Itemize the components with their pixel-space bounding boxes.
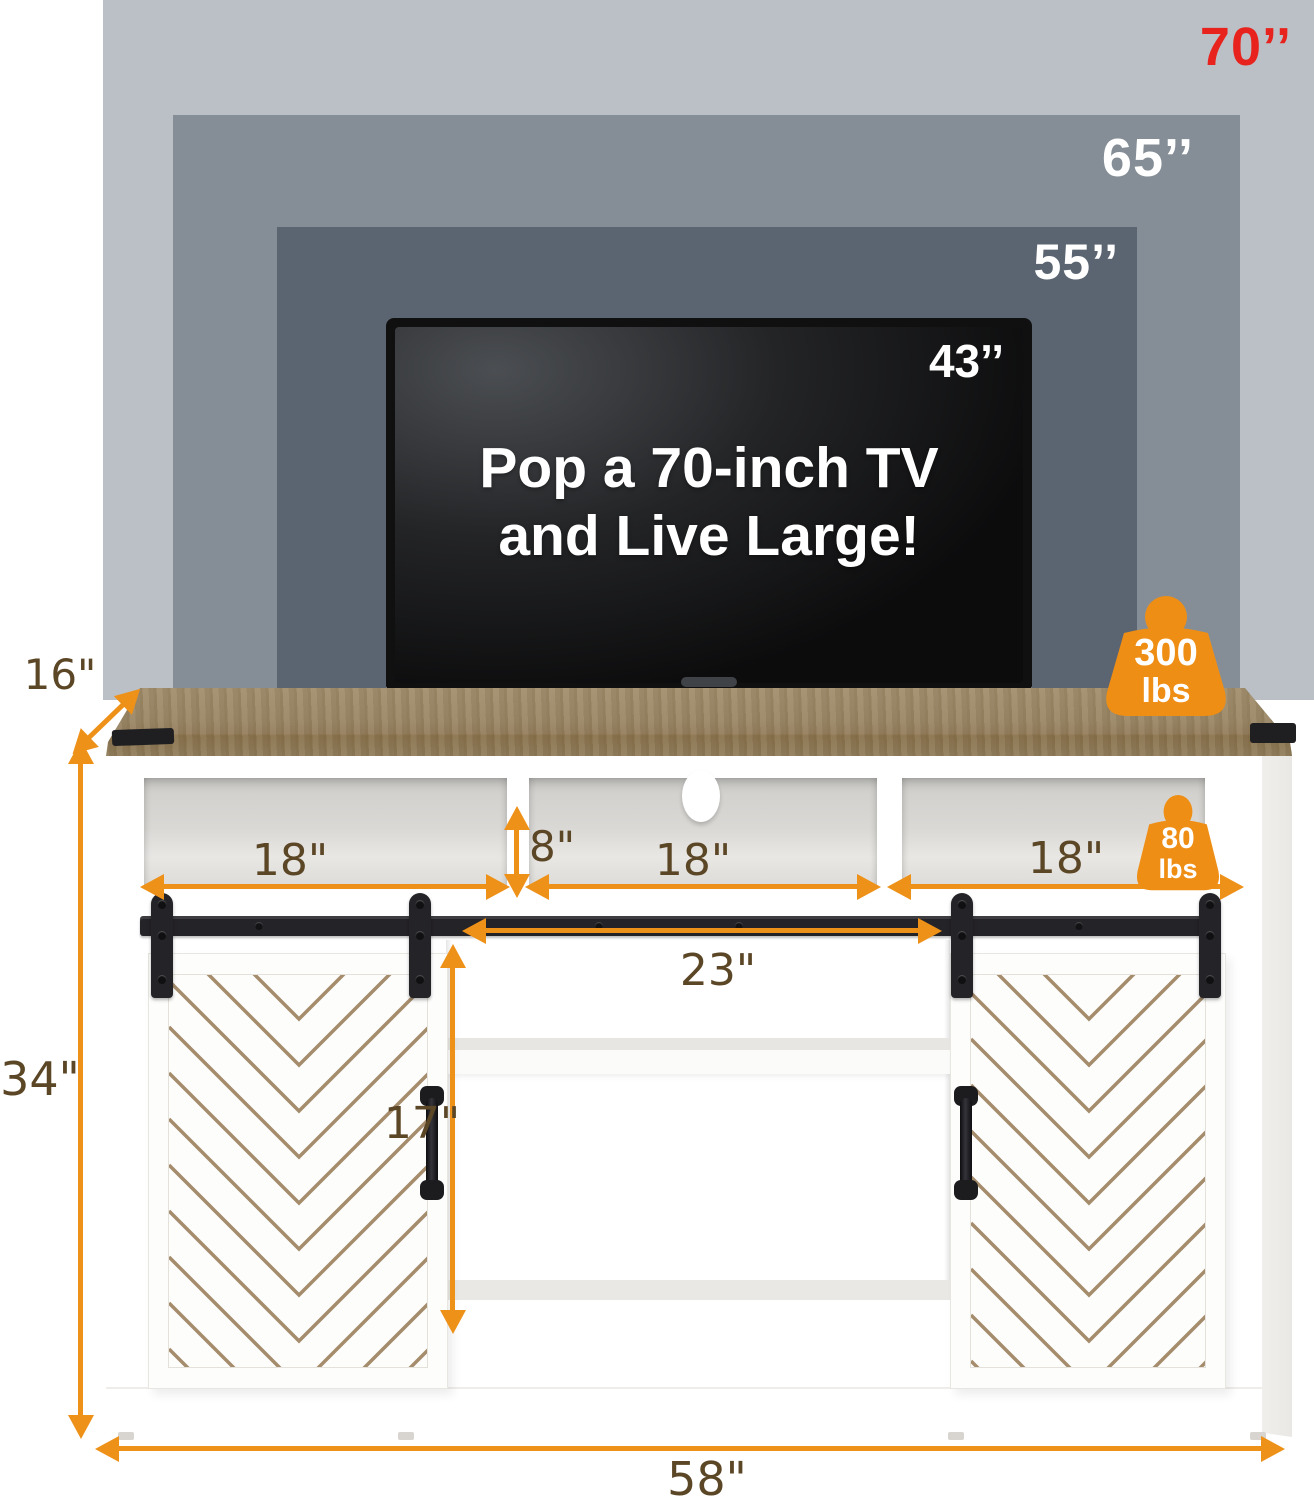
tv: 43’’ Pop a 70-inch TV and Live Large!: [386, 318, 1032, 694]
door-handle-right: [954, 1086, 978, 1200]
weight-value: 80: [1130, 823, 1226, 855]
barn-door-right: [950, 953, 1226, 1389]
cabinet-base: [106, 1390, 1262, 1437]
tv-size-70-label: 70’’: [1200, 16, 1292, 78]
center-shelf: [448, 1038, 950, 1074]
tv-headline-line2: and Live Large!: [386, 502, 1032, 570]
barn-door-left: [148, 953, 448, 1389]
dim-arrow-cubby-height: [514, 828, 519, 876]
cabinet-foot: [948, 1432, 964, 1440]
dim-arrow-rail: [484, 928, 920, 933]
dim-cubby-middle-label: 18": [655, 835, 731, 886]
barn-door-rail: [140, 916, 1218, 936]
product-dimension-infographic: 70’’ 65’’ 55’’ 43’’ Pop a 70-inch TV and…: [0, 0, 1314, 1500]
tv-size-43-label: 43’’: [929, 334, 1004, 388]
door-hanger: [151, 893, 173, 998]
dim-cubby-left-label: 18": [252, 835, 328, 886]
tv-size-55-label: 55’’: [1033, 233, 1119, 291]
cable-hole: [682, 770, 720, 822]
dim-door-height-label: 17": [384, 1098, 460, 1149]
tv-size-65-label: 65’’: [1102, 127, 1194, 189]
dim-depth-label: 16": [24, 650, 97, 699]
cabinet-foot: [118, 1432, 134, 1440]
dim-cubby-right-label: 18": [1028, 833, 1104, 884]
weight-value: 300: [1096, 634, 1236, 674]
cabinet-foot: [398, 1432, 414, 1440]
dim-height-label: 34": [0, 1052, 80, 1106]
door-hanger: [951, 893, 973, 998]
dim-width-label: 58": [667, 1452, 747, 1500]
barn-door-left-panel: [168, 974, 428, 1368]
corner-bracket-left: [112, 728, 175, 746]
dim-rail-label: 23": [680, 945, 756, 996]
weight-unit: lbs: [1096, 674, 1236, 710]
door-hanger: [409, 893, 431, 998]
dim-arrow-width: [117, 1446, 1263, 1451]
weight-badge-300lbs: 300 lbs: [1096, 596, 1236, 722]
dim-cubby-height-label: 8": [529, 822, 575, 871]
tv-brand-logo: [681, 677, 737, 687]
door-hanger: [1199, 893, 1221, 998]
tv-headline: Pop a 70-inch TV and Live Large!: [386, 434, 1032, 571]
tv-headline-line1: Pop a 70-inch TV: [386, 434, 1032, 502]
weight-badge-80lbs: 80 lbs: [1130, 795, 1226, 895]
corner-bracket-right: [1250, 723, 1296, 743]
center-floor: [448, 1280, 950, 1300]
barn-door-right-panel: [970, 974, 1206, 1368]
weight-unit: lbs: [1130, 855, 1226, 883]
